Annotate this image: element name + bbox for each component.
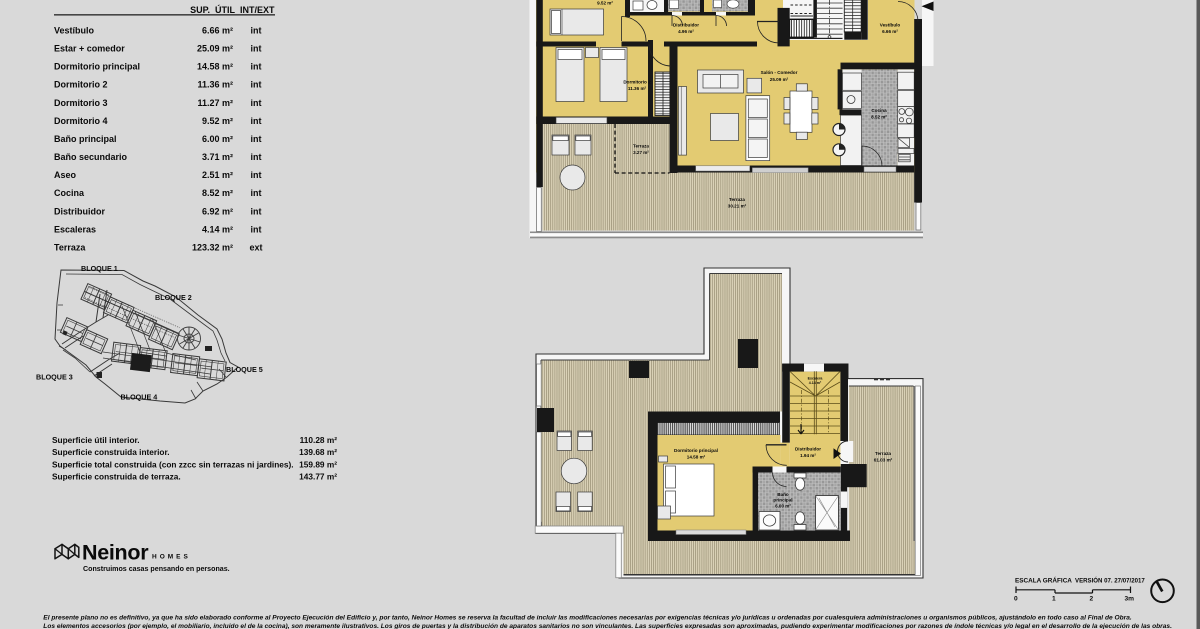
svg-text:SUP. ÚTIL INT/EXT: SUP. ÚTIL INT/EXT xyxy=(190,4,275,15)
svg-text:Dormitorio 2: Dormitorio 2 xyxy=(623,80,651,85)
svg-text:Cocina: Cocina xyxy=(54,188,85,198)
svg-text:6.00 m²: 6.00 m² xyxy=(775,504,791,509)
svg-text:8.52 m²: 8.52 m² xyxy=(871,115,887,120)
svg-text:0: 0 xyxy=(1014,596,1018,603)
svg-text:Dormitorio 3: Dormitorio 3 xyxy=(54,98,108,108)
svg-text:Baño principal: Baño principal xyxy=(54,134,117,144)
svg-text:HOMES: HOMES xyxy=(152,554,191,561)
svg-text:BLOQUE 3: BLOQUE 3 xyxy=(36,373,73,382)
svg-text:1: 1 xyxy=(1052,596,1056,603)
svg-text:int: int xyxy=(251,44,262,54)
svg-text:123.32 m²: 123.32 m² xyxy=(192,243,233,253)
svg-text:Baño secundario: Baño secundario xyxy=(54,152,128,162)
svg-text:8.52 m²: 8.52 m² xyxy=(202,188,233,198)
svg-text:Escalera: Escalera xyxy=(808,377,824,381)
svg-text:BLOQUE 4: BLOQUE 4 xyxy=(121,393,158,402)
svg-text:11.27 m²: 11.27 m² xyxy=(197,98,233,108)
svg-text:Superficie construida de terra: Superficie construida de terraza. xyxy=(52,472,181,482)
svg-text:3m: 3m xyxy=(1125,596,1135,603)
svg-text:61.03 m²: 61.03 m² xyxy=(874,458,893,463)
svg-text:30.21 m²: 30.21 m² xyxy=(728,204,747,209)
svg-text:int: int xyxy=(251,134,262,144)
svg-text:Distribuidor: Distribuidor xyxy=(54,206,105,216)
svg-text:2.51 m²: 2.51 m² xyxy=(202,170,233,180)
svg-text:14.58 m²: 14.58 m² xyxy=(197,62,233,72)
svg-text:159.89 m²: 159.89 m² xyxy=(299,459,337,469)
svg-text:Terraza: Terraza xyxy=(729,197,745,202)
svg-text:Terraza: Terraza xyxy=(875,451,891,456)
svg-text:3.71 m²: 3.71 m² xyxy=(202,152,233,162)
svg-text:1.94 m²: 1.94 m² xyxy=(800,453,816,458)
svg-text:Terraza: Terraza xyxy=(54,243,86,253)
svg-text:Dormitorio 4: Dormitorio 4 xyxy=(54,116,108,126)
svg-text:int: int xyxy=(251,188,262,198)
svg-text:BLOQUE 1: BLOQUE 1 xyxy=(81,264,118,273)
svg-text:Dormitorio 2: Dormitorio 2 xyxy=(54,80,108,90)
svg-text:Construimos casas pensando en: Construimos casas pensando en personas. xyxy=(83,565,230,573)
svg-text:int: int xyxy=(251,98,262,108)
svg-text:6.66 m²: 6.66 m² xyxy=(202,26,233,36)
svg-text:Superficie útil interior.: Superficie útil interior. xyxy=(52,435,140,445)
svg-text:143.77 m²: 143.77 m² xyxy=(299,472,337,482)
svg-text:Cocina: Cocina xyxy=(871,108,887,113)
svg-text:11.36 m²: 11.36 m² xyxy=(628,86,647,91)
svg-text:Los elementos accesorios (por: Los elementos accesorios (por ejemplo, e… xyxy=(43,623,1172,629)
svg-text:int: int xyxy=(251,62,262,72)
svg-text:Dormitorio principal: Dormitorio principal xyxy=(674,448,718,453)
svg-text:Salón - Comedor: Salón - Comedor xyxy=(761,70,798,75)
svg-text:6.00 m²: 6.00 m² xyxy=(202,134,233,144)
svg-text:Superficie construida interior: Superficie construida interior. xyxy=(52,447,170,457)
svg-text:139.68 m²: 139.68 m² xyxy=(299,447,337,457)
svg-text:Dormitorio principal: Dormitorio principal xyxy=(54,62,140,72)
svg-text:3.27 m²: 3.27 m² xyxy=(633,150,649,155)
svg-text:ext: ext xyxy=(249,243,262,253)
svg-text:Neinor: Neinor xyxy=(82,541,149,565)
svg-text:110.28 m²: 110.28 m² xyxy=(300,435,338,445)
svg-text:Estar + comedor: Estar + comedor xyxy=(54,44,125,54)
svg-text:VERSIÓN 07. 27/07/2017: VERSIÓN 07. 27/07/2017 xyxy=(1075,577,1145,585)
svg-text:Superficie total construida (c: Superficie total construida (con zzcc si… xyxy=(52,459,294,469)
svg-text:int: int xyxy=(251,26,262,36)
svg-text:4.96 m²: 4.96 m² xyxy=(678,29,694,34)
svg-text:25.09 m²: 25.09 m² xyxy=(197,44,233,54)
svg-text:Terraza: Terraza xyxy=(633,144,649,149)
svg-text:9.52 m²: 9.52 m² xyxy=(597,1,613,6)
svg-text:Vestíbulo: Vestíbulo xyxy=(880,23,901,28)
svg-text:ESCALA GRÁFICA: ESCALA GRÁFICA xyxy=(1015,576,1072,585)
svg-text:6.92 m²: 6.92 m² xyxy=(202,206,233,216)
svg-text:BLOQUE 2: BLOQUE 2 xyxy=(155,293,192,302)
svg-text:Distribuidor: Distribuidor xyxy=(673,23,699,28)
svg-text:6.66 m²: 6.66 m² xyxy=(882,29,898,34)
svg-text:int: int xyxy=(251,80,262,90)
svg-text:4.14 m²: 4.14 m² xyxy=(202,224,233,234)
svg-text:25.09 m²: 25.09 m² xyxy=(770,77,789,82)
svg-text:Escaleras: Escaleras xyxy=(54,224,96,234)
svg-text:11.36 m²: 11.36 m² xyxy=(197,80,233,90)
svg-text:Distribuidor: Distribuidor xyxy=(795,447,821,452)
svg-text:int: int xyxy=(251,206,262,216)
svg-text:BLOQUE 5: BLOQUE 5 xyxy=(226,365,263,374)
svg-text:int: int xyxy=(251,170,262,180)
svg-text:Aseo: Aseo xyxy=(54,170,77,180)
svg-text:int: int xyxy=(251,152,262,162)
svg-text:Baño: Baño xyxy=(777,492,789,497)
svg-text:Vestíbulo: Vestíbulo xyxy=(54,26,95,36)
svg-text:int: int xyxy=(251,116,262,126)
svg-text:9.52 m²: 9.52 m² xyxy=(202,116,233,126)
svg-text:14.58 m²: 14.58 m² xyxy=(687,455,706,460)
svg-text:El presente plano no es defini: El presente plano no es definitivo, ya q… xyxy=(43,615,1132,622)
svg-text:2: 2 xyxy=(1090,596,1094,603)
svg-text:int: int xyxy=(251,224,262,234)
svg-text:principal: principal xyxy=(773,498,792,503)
svg-text:4.14 m²: 4.14 m² xyxy=(809,381,822,385)
